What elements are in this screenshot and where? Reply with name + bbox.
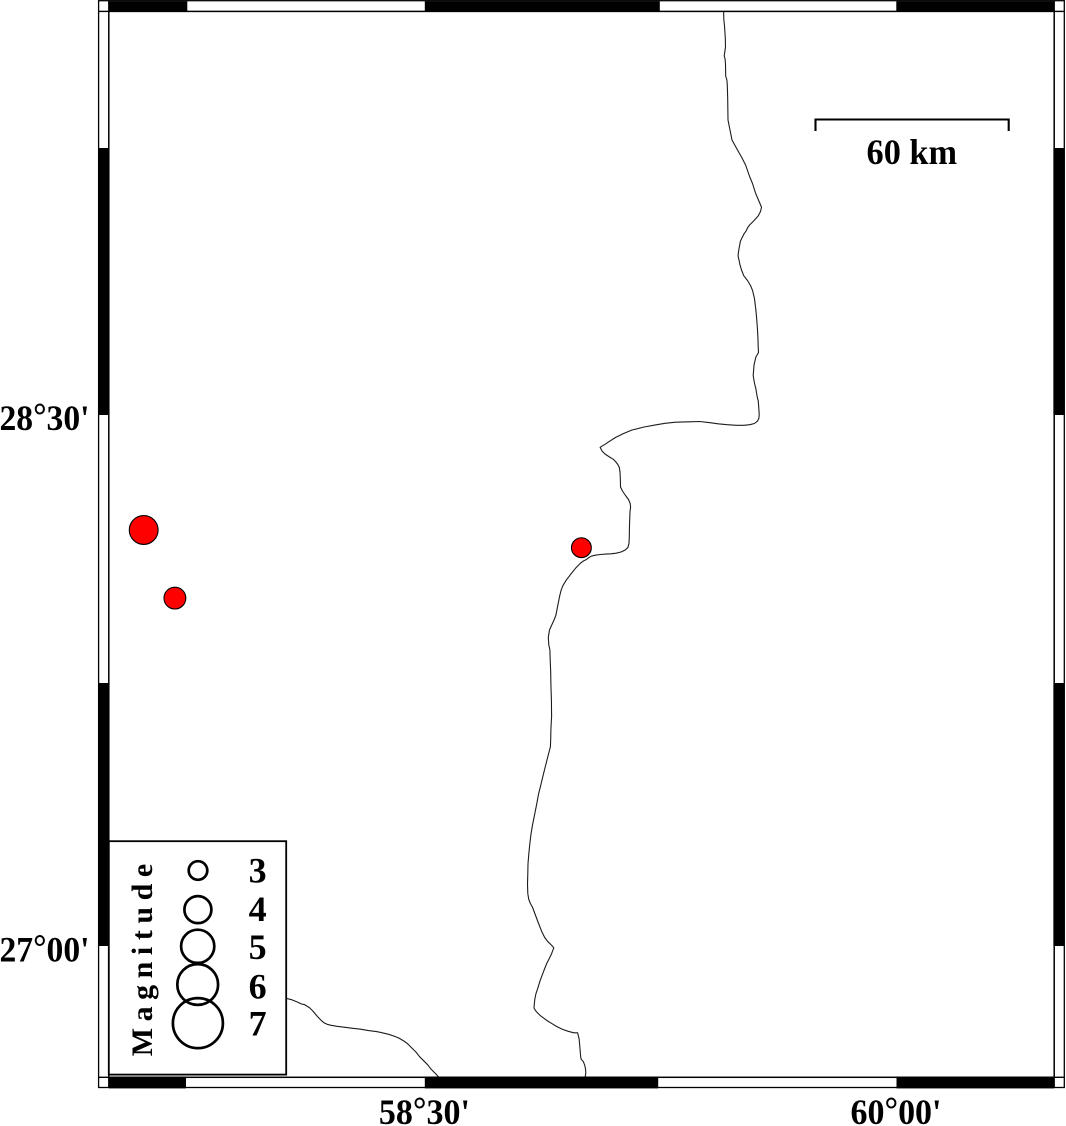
svg-text:60 km: 60 km <box>867 132 958 172</box>
svg-text:27°00': 27°00' <box>0 927 90 970</box>
svg-text:28°30': 28°30' <box>0 396 90 439</box>
svg-text:6: 6 <box>249 966 267 1006</box>
svg-text:60°00': 60°00' <box>851 1090 942 1126</box>
svg-text:4: 4 <box>249 889 267 929</box>
svg-text:7: 7 <box>249 1004 267 1044</box>
svg-text:3: 3 <box>249 851 267 891</box>
svg-text:5: 5 <box>249 927 267 967</box>
svg-text:58°30': 58°30' <box>379 1090 470 1126</box>
